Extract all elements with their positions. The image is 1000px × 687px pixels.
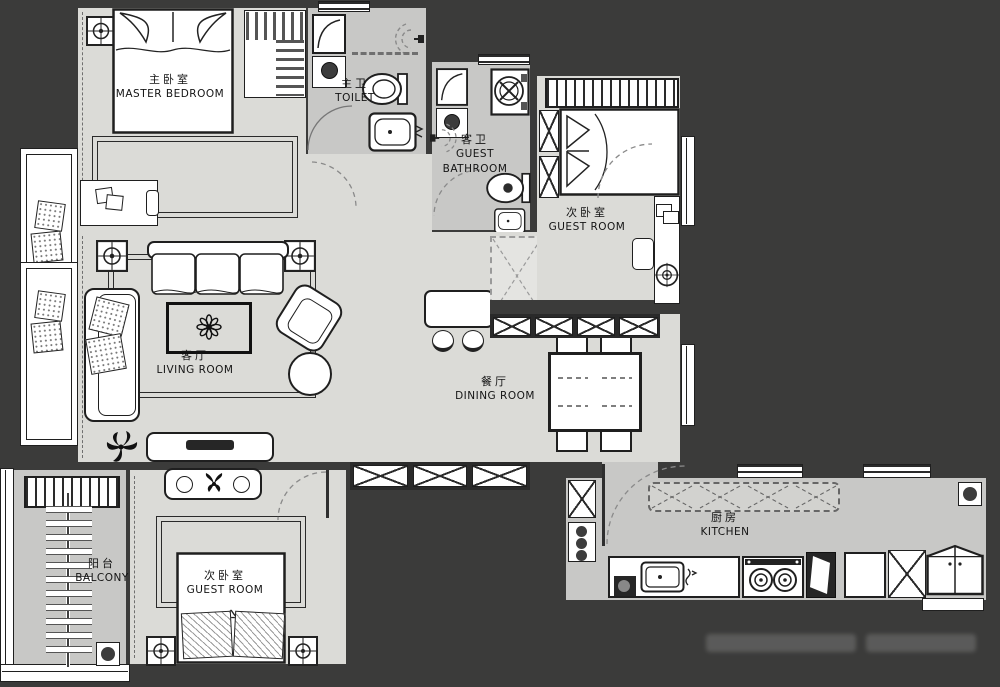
curtain-line: [134, 476, 135, 658]
desk-chair: [632, 238, 654, 270]
dining-table: [548, 352, 642, 432]
wall: [490, 300, 680, 314]
meter-dial: [576, 538, 587, 549]
flower-icon: [196, 314, 222, 340]
trash-bin-lid: [618, 580, 630, 592]
door-swing-bathroom: [432, 168, 482, 218]
tv-icon: [186, 440, 234, 450]
window-pane: [413, 465, 468, 487]
meter-dial: [576, 526, 587, 537]
sink: [492, 208, 532, 234]
window: [863, 464, 931, 478]
plant-icon: [203, 472, 225, 496]
door-swing-master: [310, 160, 358, 208]
window: [922, 598, 984, 611]
sofa: [146, 240, 290, 298]
cushion: [34, 290, 66, 322]
bath-cabinet-icon: [312, 14, 346, 54]
fan-icon: [102, 428, 140, 466]
floor-drain-icon: [101, 647, 115, 661]
curtain-line: [82, 236, 83, 458]
fridge-icon: [926, 544, 984, 596]
ceiling-light-icon: [288, 636, 318, 666]
watermark: [706, 634, 856, 652]
drying-rack-bars: [46, 506, 92, 656]
bar-stool: [432, 330, 454, 352]
wardrobe-rail-icon: [246, 12, 304, 40]
dining-chair: [600, 430, 632, 452]
bar-counter: [424, 290, 494, 328]
pillow: [233, 611, 285, 660]
cushion: [85, 333, 127, 375]
window: [681, 344, 695, 426]
window-mullion: [686, 138, 687, 224]
toilet-fixture: [360, 70, 410, 108]
floor-plan: 主卧室 MASTER BEDROOM 主卫 TOILET: [0, 0, 1000, 687]
nightstand: [539, 110, 559, 152]
cushion: [31, 321, 64, 354]
base-cabinet-x: [888, 550, 926, 598]
corner-cabinet-door: [810, 556, 830, 594]
toilet-fixture: [484, 170, 532, 206]
sideboard-door: [493, 317, 531, 336]
double-bed: [112, 8, 234, 134]
cushion: [31, 231, 64, 264]
ceiling-light-icon: [96, 240, 128, 272]
door-swing-guest-south: [276, 470, 328, 522]
meter-dial: [576, 550, 587, 561]
window: [681, 136, 695, 226]
kitchen-sink: [640, 561, 700, 593]
water-heater-icon: [963, 487, 977, 501]
radiator-window: [545, 78, 679, 108]
window: [318, 1, 370, 12]
balcony-frame: [0, 664, 130, 682]
ceiling-light-icon: [654, 262, 680, 288]
sink: [368, 112, 424, 152]
balcony-frame: [0, 468, 14, 668]
upper-cabinets-cross: [648, 482, 840, 512]
door-swing-guest-north: [596, 142, 654, 200]
balcony-window: [24, 476, 120, 508]
window: [737, 464, 803, 478]
balcony-frame-line: [2, 671, 128, 672]
dresser-bowl: [233, 476, 250, 493]
door-swing-toilet: [306, 104, 354, 152]
window-band: [350, 462, 530, 490]
washbasin-bowl-icon: [321, 62, 338, 79]
round-side-table: [288, 352, 332, 396]
bar-stool: [462, 330, 484, 352]
dresser-bowl: [176, 476, 193, 493]
window-pane: [472, 465, 527, 487]
sideboard-door: [535, 317, 573, 336]
watermark: [866, 634, 976, 652]
shower-icon: [430, 118, 474, 158]
nightstand: [539, 156, 559, 198]
gas-stove-icon: [744, 558, 802, 596]
window-mullion: [686, 346, 687, 424]
sideboard: [490, 314, 660, 338]
utility-cabinet: [568, 480, 596, 518]
base-cabinet: [844, 552, 886, 598]
wardrobe-rail-icon: [276, 40, 304, 96]
desk-chair: [146, 190, 159, 216]
dining-chair: [556, 430, 588, 452]
window: [478, 54, 530, 65]
desk-papers: [105, 194, 123, 211]
washing-machine-icon: [490, 68, 530, 116]
cushion: [34, 200, 66, 232]
sideboard-door: [619, 317, 657, 336]
window-pane: [353, 465, 408, 487]
ceiling-light-icon: [146, 636, 176, 666]
pillow: [181, 611, 233, 660]
shower-partition: [352, 52, 418, 55]
bath-cabinet-icon: [436, 68, 468, 106]
balcony-frame-line: [5, 470, 6, 666]
desk-papers: [663, 211, 679, 224]
sideboard-door: [577, 317, 615, 336]
